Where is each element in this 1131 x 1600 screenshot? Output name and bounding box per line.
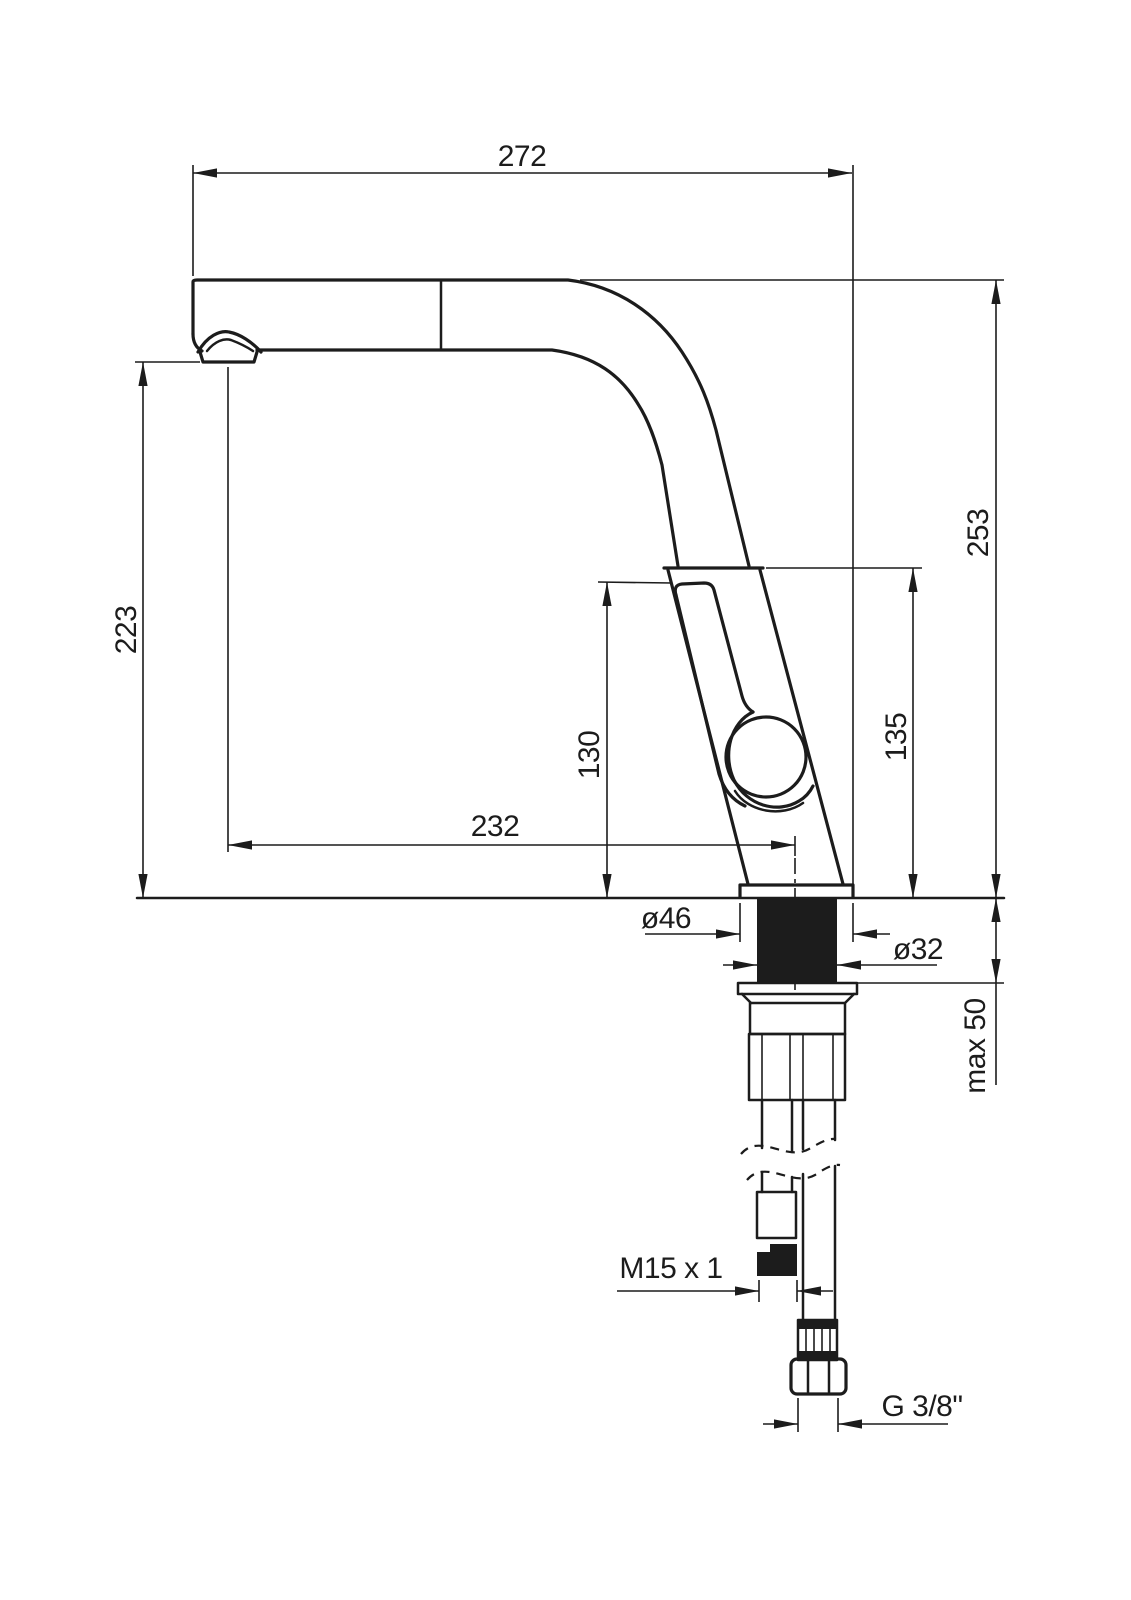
under-counter-parts xyxy=(738,898,857,1394)
hose-crimp-ferrule xyxy=(798,1320,837,1360)
aerator-outlet xyxy=(198,332,261,362)
faucet-dimension-drawing: 272 253 223 130 135 232 ø46 ø32 max 50 M… xyxy=(0,0,1131,1600)
supply-hex-nut xyxy=(791,1359,846,1394)
dim-height-to-spout-label: 223 xyxy=(110,606,143,655)
dim-mounting-max-label: max 50 xyxy=(959,998,992,1093)
dim-shank-diameter-label: ø32 xyxy=(893,933,943,966)
hose-guide-block xyxy=(749,1034,845,1100)
aerator-base xyxy=(200,352,257,362)
spout-outline xyxy=(193,280,749,566)
hose-break-line-top xyxy=(741,1139,836,1154)
spout-underside xyxy=(257,350,678,566)
handle-lever-left-edge xyxy=(676,595,745,806)
dim-width-overall-label: 272 xyxy=(498,140,547,173)
dimension-arrowheads xyxy=(138,168,1000,1428)
supply-hoses-upper xyxy=(762,1100,835,1152)
dim-height-overall-label: 253 xyxy=(962,509,995,558)
dim-lever-height-label: 130 xyxy=(573,731,606,780)
supply-hoses-lower xyxy=(762,1166,835,1320)
aerator-inner-dome xyxy=(207,339,253,351)
pullout-hose-connector xyxy=(757,1192,797,1276)
backing-washer xyxy=(738,983,857,994)
dim-spout-reach-label: 232 xyxy=(471,810,520,843)
dim-handle-height-label: 135 xyxy=(880,713,913,762)
dim-supply-thread-label: G 3/8" xyxy=(881,1390,962,1423)
dim-hose-thread-label: M15 x 1 xyxy=(619,1252,722,1285)
mounting-flange xyxy=(740,885,853,897)
washer-bevel-right xyxy=(845,994,854,1003)
dim-flange-diameter-label: ø46 xyxy=(641,902,691,935)
faucet-body xyxy=(193,280,853,897)
washer-bevel-left xyxy=(742,994,751,1003)
dimension-labels: 272 253 223 130 135 232 ø46 ø32 max 50 M… xyxy=(110,140,995,1423)
threaded-shank xyxy=(757,898,837,983)
mounting-block xyxy=(750,1003,845,1034)
lower-body-right-edge xyxy=(760,570,843,884)
dimension-lines xyxy=(135,165,1004,1432)
technical-drawing-canvas: 272 253 223 130 135 232 ø46 ø32 max 50 M… xyxy=(0,0,1131,1600)
